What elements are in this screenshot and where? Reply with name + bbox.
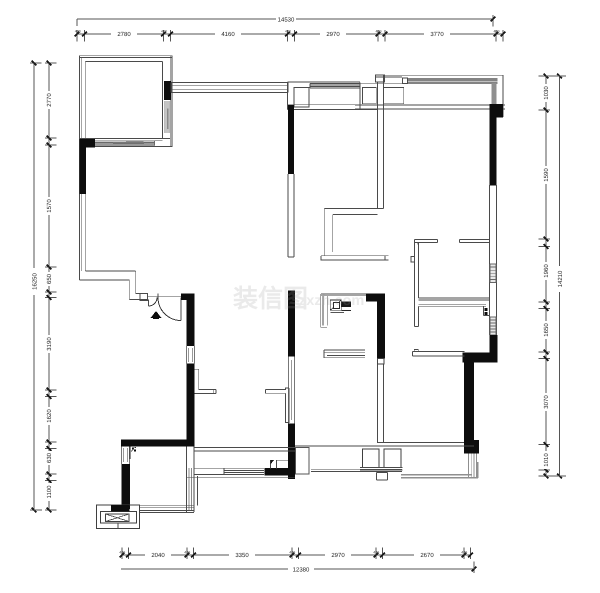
svg-text:2970: 2970 [326, 31, 340, 38]
svg-text:430: 430 [184, 551, 190, 555]
svg-text:16250: 16250 [32, 272, 39, 289]
svg-text:3190: 3190 [46, 337, 53, 351]
svg-text:1650: 1650 [543, 323, 550, 337]
svg-text:2780: 2780 [117, 31, 131, 38]
svg-text:14530: 14530 [278, 16, 295, 23]
svg-text:1620: 1620 [46, 409, 53, 423]
svg-text:430: 430 [289, 551, 295, 555]
svg-text:1030: 1030 [543, 86, 550, 100]
svg-text:2770: 2770 [46, 93, 53, 107]
svg-text:1960: 1960 [543, 264, 550, 278]
svg-text:zxzh.com: zxzh.com [299, 293, 364, 309]
svg-text:430: 430 [373, 551, 379, 555]
svg-text:12380: 12380 [293, 566, 310, 573]
svg-text:430: 430 [376, 30, 382, 34]
svg-text:650: 650 [46, 273, 53, 284]
svg-text:430: 430 [161, 30, 167, 34]
svg-text:14210: 14210 [557, 270, 564, 287]
svg-text:3350: 3350 [235, 552, 249, 559]
svg-text:2970: 2970 [331, 552, 345, 559]
svg-text:430: 430 [285, 30, 291, 34]
svg-text:3070: 3070 [543, 395, 550, 409]
svg-text:430: 430 [461, 551, 467, 555]
svg-text:1100: 1100 [46, 485, 53, 499]
svg-text:2670: 2670 [420, 552, 434, 559]
svg-text:1570: 1570 [46, 199, 53, 213]
svg-text:1010: 1010 [543, 453, 550, 467]
svg-text:4160: 4160 [221, 31, 235, 38]
svg-text:3770: 3770 [430, 31, 444, 38]
svg-text:装信图: 装信图 [232, 285, 308, 313]
svg-text:430: 430 [494, 30, 500, 34]
svg-text:430: 430 [119, 551, 125, 555]
svg-text:2040: 2040 [151, 552, 165, 559]
svg-text:1590: 1590 [543, 168, 550, 182]
svg-text:630: 630 [46, 452, 53, 463]
svg-text:430: 430 [75, 30, 81, 34]
